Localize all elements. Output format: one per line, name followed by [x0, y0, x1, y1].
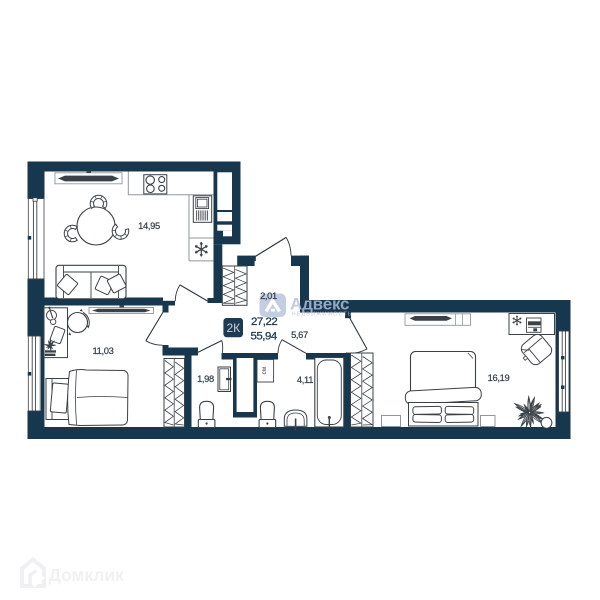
svg-text:см: см — [261, 366, 268, 374]
svg-text:11,03: 11,03 — [92, 345, 113, 356]
svg-text:НЕДВИЖИМОСТЬ: НЕДВИЖИМОСТЬ — [292, 311, 353, 317]
svg-text:2,01: 2,01 — [260, 290, 277, 301]
svg-text:2К: 2К — [226, 321, 240, 335]
svg-text:5,67: 5,67 — [291, 329, 308, 340]
svg-text:4,11: 4,11 — [297, 374, 313, 385]
svg-text:1,98: 1,98 — [197, 373, 214, 384]
svg-text:14,95: 14,95 — [138, 220, 160, 231]
svg-text:Домклик: Домклик — [49, 565, 125, 585]
svg-text:27,22: 27,22 — [251, 316, 277, 328]
svg-text:16,19: 16,19 — [488, 372, 510, 383]
svg-text:55,94: 55,94 — [251, 330, 277, 342]
